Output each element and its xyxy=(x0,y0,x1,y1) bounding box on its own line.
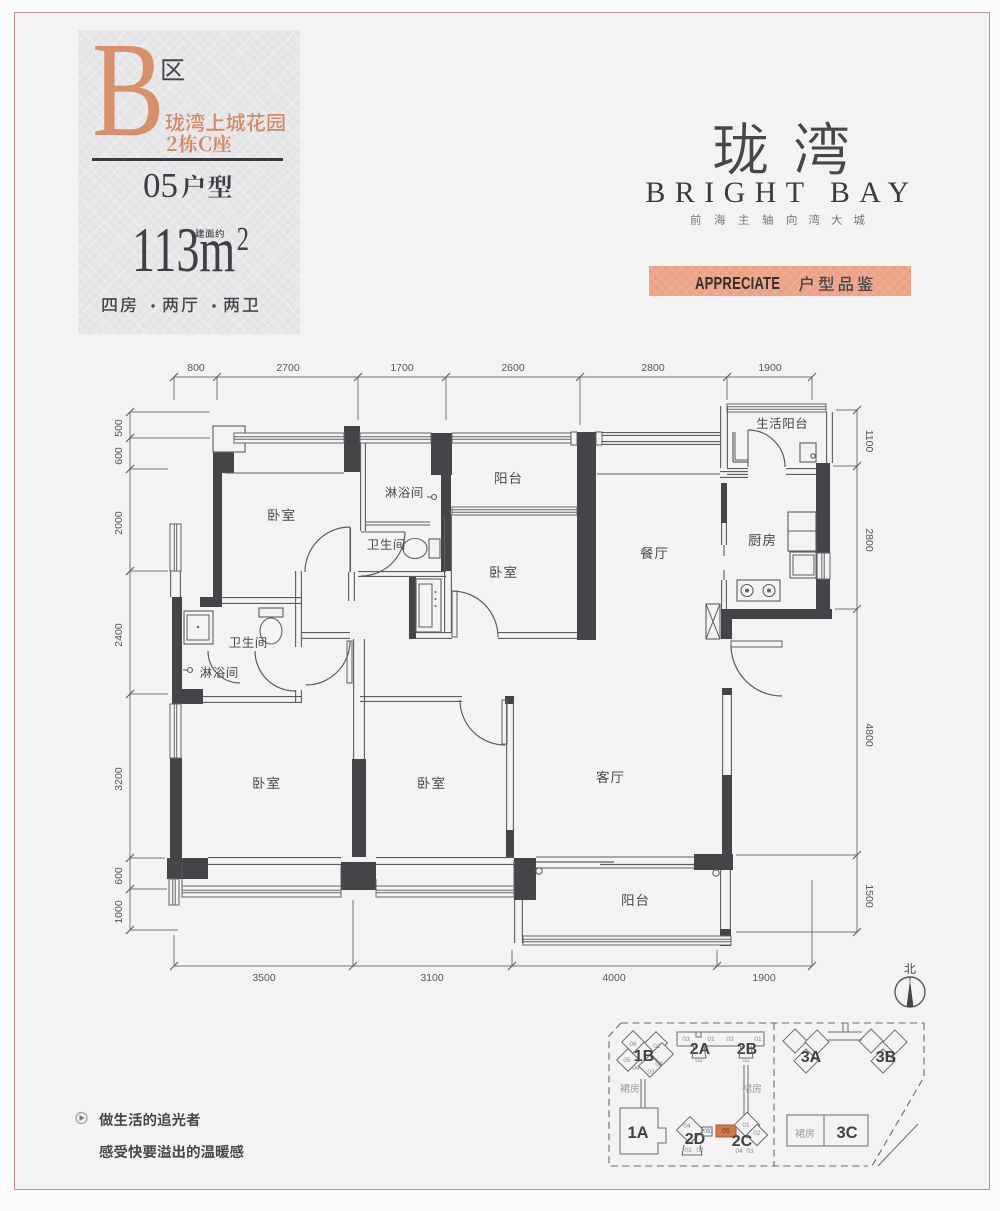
svg-text:02: 02 xyxy=(655,1061,663,1068)
svg-text:04: 04 xyxy=(632,1065,640,1072)
svg-text:01: 01 xyxy=(742,1122,750,1129)
svg-text:3A: 3A xyxy=(801,1049,822,1066)
svg-text:2800: 2800 xyxy=(641,362,665,374)
svg-text:02: 02 xyxy=(742,1057,750,1064)
svg-text:01: 01 xyxy=(703,1128,711,1135)
svg-text:03: 03 xyxy=(684,1147,692,1154)
svg-text:2600: 2600 xyxy=(501,362,525,374)
svg-text:600: 600 xyxy=(113,867,125,885)
svg-text:01: 01 xyxy=(653,1043,661,1050)
svg-text:4000: 4000 xyxy=(602,972,626,984)
svg-text:2400: 2400 xyxy=(113,623,125,647)
svg-text:3100: 3100 xyxy=(420,972,444,984)
svg-text:600: 600 xyxy=(113,447,125,465)
svg-text:04: 04 xyxy=(683,1123,691,1130)
svg-text:1900: 1900 xyxy=(758,362,782,374)
svg-text:02: 02 xyxy=(753,1130,761,1137)
svg-text:05: 05 xyxy=(143,166,178,205)
svg-text:800: 800 xyxy=(187,362,205,374)
svg-text:1700: 1700 xyxy=(390,362,414,374)
svg-text:3C: 3C xyxy=(836,1124,857,1142)
svg-text:06: 06 xyxy=(629,1041,637,1048)
svg-text:500: 500 xyxy=(113,419,125,437)
svg-text:02: 02 xyxy=(695,1057,703,1064)
svg-text:1500: 1500 xyxy=(863,884,875,908)
svg-text:3200: 3200 xyxy=(113,767,125,791)
svg-text:03: 03 xyxy=(726,1036,734,1043)
svg-text:3500: 3500 xyxy=(252,972,276,984)
svg-text:1A: 1A xyxy=(627,1124,648,1142)
svg-text:05: 05 xyxy=(623,1057,631,1064)
svg-text:2000: 2000 xyxy=(113,511,125,535)
svg-text:1100: 1100 xyxy=(863,430,875,453)
svg-text:03: 03 xyxy=(746,1148,754,1155)
svg-text:04: 04 xyxy=(735,1148,743,1155)
svg-text:03: 03 xyxy=(647,1069,655,1076)
svg-text:1900: 1900 xyxy=(752,972,776,984)
svg-text:1000: 1000 xyxy=(113,900,125,924)
svg-text:05: 05 xyxy=(722,1128,730,1135)
svg-text:1B: 1B xyxy=(634,1048,654,1065)
svg-text:4800: 4800 xyxy=(863,723,875,747)
svg-text:3B: 3B xyxy=(876,1049,896,1066)
svg-text:2800: 2800 xyxy=(863,528,875,552)
svg-text:2700: 2700 xyxy=(276,362,300,374)
